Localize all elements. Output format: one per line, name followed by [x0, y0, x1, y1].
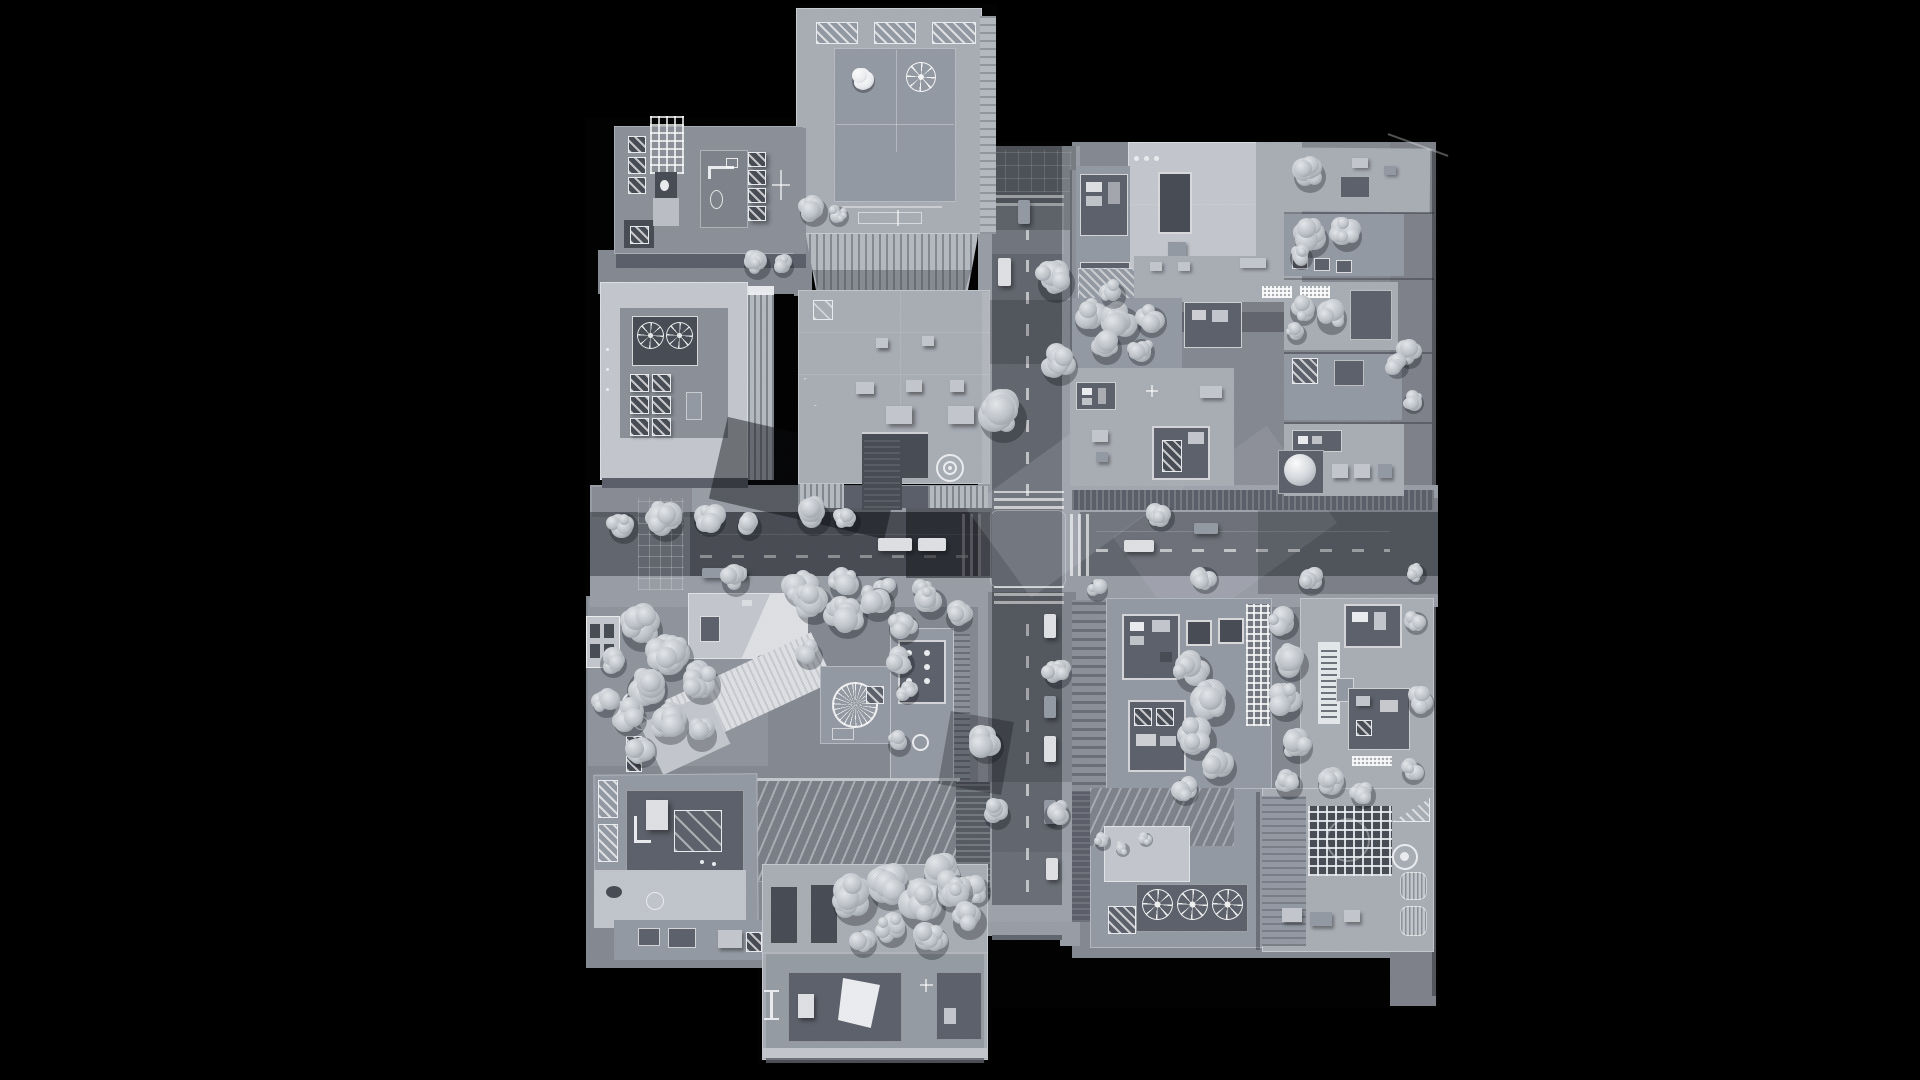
d-row1-unit2: [1384, 166, 1396, 175]
d-signage-dots-1: [1262, 286, 1292, 298]
f6-facade-south: [766, 1058, 984, 1063]
b3-unit-3: [630, 396, 649, 414]
c-lunit-1: [886, 406, 912, 424]
f-fanbox-1: [626, 736, 642, 752]
tower-skylight-3: [932, 22, 976, 44]
c-seam-1: [798, 332, 990, 333]
f6-item: [944, 1008, 956, 1024]
c-unit-a: [876, 338, 888, 348]
tower-ledge-line: [842, 206, 942, 208]
car: [998, 258, 1011, 286]
c-seam-3: [900, 290, 901, 412]
b1-roof-blob: [660, 180, 669, 191]
c-atrium-edge: [862, 432, 928, 434]
f5-oval: [606, 886, 622, 898]
d-mid-cross-v: [1151, 385, 1153, 397]
f-house-win-3: [590, 644, 600, 658]
b2-ac-1: [748, 152, 766, 167]
d-south-unit3: [1240, 258, 1266, 268]
page-body: { "palette": { "bg":"#000000", "road":"#…: [0, 0, 1920, 1080]
tower-antenna: [897, 210, 899, 226]
d-garden-unit1: [1192, 310, 1206, 320]
f5-hatch-left-1: [598, 780, 618, 818]
tower-skylight-2: [874, 22, 916, 44]
b3-rim-dot-3: [606, 388, 609, 391]
g3-tank-2: [1400, 906, 1427, 936]
f4-top-edge: [742, 778, 960, 781]
f-house-win-4: [604, 644, 614, 658]
road-shadow-vmid: [988, 300, 1076, 364]
road-light-vbottom: [984, 852, 1076, 922]
f3-dot-4: [924, 650, 930, 656]
g-sign-lines: [1321, 648, 1337, 718]
d-row4-court: [1334, 360, 1364, 386]
d-row1-unit1: [1352, 158, 1368, 168]
b1-facade-east: [794, 128, 806, 254]
d-low-unit2: [1092, 430, 1108, 442]
f6-ibeam-bottom: [764, 1018, 779, 1020]
f3-dot-6: [924, 678, 930, 684]
c-seam-2: [798, 374, 990, 375]
d-mid-bedcourt: [1076, 382, 1116, 410]
b2-ac-2: [748, 170, 766, 185]
c-facade-sw: [798, 484, 844, 508]
g-alley: [1256, 792, 1260, 950]
b3-unit-7: [686, 392, 702, 420]
c-emblem-dot: [948, 466, 952, 470]
d-bright-unit: [1168, 242, 1186, 257]
tower-skylight-1: [816, 22, 858, 44]
g-east-bed: [1352, 612, 1368, 622]
g-east-court1: [1344, 604, 1402, 648]
f5-hatch-left-2: [598, 824, 618, 862]
f6-court-2: [936, 972, 982, 1040]
g1-bed1: [1130, 622, 1144, 631]
g2-facade-west: [1072, 792, 1090, 922]
c-unit-b: [922, 336, 934, 346]
car: [1044, 800, 1056, 824]
d-garden-court: [1184, 302, 1242, 348]
tower-helipad-frame: [858, 212, 922, 224]
d-bright-tower-seam: [1128, 204, 1258, 205]
d-pergola-1: [1292, 256, 1308, 269]
f-house-win-2: [604, 624, 614, 638]
b3-fan-2: [666, 322, 693, 349]
car: [1124, 540, 1154, 552]
car: [1018, 200, 1030, 224]
g1-bed2: [1130, 636, 1144, 645]
d-pergola-2: [1314, 258, 1330, 271]
b3-facade-top-edge: [748, 286, 774, 295]
g2-fan-1: [1142, 889, 1173, 920]
g2-garden-court: [1104, 826, 1190, 882]
d-alley-2: [1284, 278, 1434, 280]
g3-tank-1: [1400, 872, 1427, 900]
c-diag-square: [813, 300, 833, 320]
b1-roof-court: [653, 198, 679, 226]
g-east-unit: [1374, 612, 1386, 630]
g1-dark-unit: [1160, 652, 1172, 662]
d-dot-1: [1134, 156, 1139, 161]
tower-court: [834, 48, 956, 202]
car: [1046, 858, 1058, 880]
b2-court: [700, 150, 748, 228]
d-low-unit3: [1096, 452, 1108, 462]
f-wheel-emblem: [622, 692, 644, 714]
f6-parapet: [762, 1048, 988, 1058]
b2-oval: [710, 190, 723, 209]
f2-mark-1: [742, 600, 752, 606]
f-sun-unit: [832, 728, 854, 740]
d-mid-units: [1200, 386, 1222, 398]
d-row4-hatch: [1292, 358, 1318, 384]
b1-antenna-h: [772, 184, 790, 186]
b3-rim-dot-1: [606, 348, 609, 351]
f5-unit-1: [638, 928, 660, 946]
c-facade-east-thin: [982, 292, 990, 484]
d-pergola-3: [1336, 260, 1352, 273]
road-shadow-west-end: [592, 487, 692, 517]
g3-gear-dot: [1400, 852, 1409, 861]
b3-unit-1: [630, 374, 649, 392]
g3-unit-2: [1310, 912, 1332, 926]
d-nw-bed2: [1086, 196, 1102, 206]
d-dome: [1284, 454, 1316, 486]
f-house-win-1: [590, 624, 600, 638]
g3-unit-3: [1344, 910, 1360, 922]
c-lunit-2: [948, 406, 974, 424]
g1-bed3: [1152, 620, 1170, 632]
f5-unit-4: [746, 932, 762, 952]
f5-dot-2: [712, 862, 716, 866]
b1-facade-south: [616, 254, 806, 268]
g-east-dots: [1352, 756, 1392, 766]
d-mid-bed3: [1098, 388, 1106, 404]
d-bright-tower: [1128, 142, 1258, 270]
g1-court2-hatch1: [1134, 708, 1152, 726]
d-row5-unit2: [1354, 464, 1370, 478]
f3-dot-1: [906, 650, 912, 656]
b1-vent-1: [628, 136, 646, 153]
b1-scaffold: [650, 116, 684, 174]
d-low-unit1: [1188, 432, 1204, 444]
car: [727, 568, 747, 578]
b2-box: [726, 158, 738, 168]
g2-fan-2: [1177, 889, 1208, 920]
g2-hatch: [1108, 906, 1136, 934]
f6-skylight-1: [770, 886, 798, 944]
g1-court2-hatch2: [1156, 708, 1174, 726]
g1-facade-west: [1072, 600, 1106, 812]
f5-unit-3: [718, 930, 742, 948]
b3-unit-6: [652, 418, 671, 436]
city-model-render: [0, 0, 1920, 1080]
d-south-unit1: [1150, 262, 1162, 271]
tower-facade-east: [980, 16, 996, 234]
d-nw-bed3: [1108, 182, 1120, 204]
d-garden-unit2: [1212, 310, 1228, 322]
f6-skylight-2: [810, 884, 838, 944]
g2-fan-3: [1212, 889, 1243, 920]
c-unit-3: [950, 380, 964, 392]
b1-vent-3: [628, 177, 646, 194]
g1-skylight-2: [1218, 618, 1244, 644]
f3-court: [898, 640, 946, 704]
b3-fan-1: [637, 322, 664, 349]
f6-ibeam-v: [770, 990, 773, 1020]
f3-dot-2: [906, 664, 912, 670]
d-row5-unit3: [1378, 464, 1392, 478]
f-sun-hatch: [866, 686, 884, 704]
c-unit-2: [906, 380, 922, 392]
car: [1044, 614, 1056, 638]
f5-hatch-panel: [674, 810, 722, 852]
d-signage-dots-2: [1300, 286, 1330, 298]
d-dot-3: [1154, 156, 1159, 161]
car: [1044, 696, 1056, 718]
b3-unit-5: [630, 418, 649, 436]
f5-unit-2: [668, 928, 696, 948]
f3-dot-5: [924, 664, 930, 670]
tower-court-line-h: [836, 124, 954, 125]
b3-rim-dot-2: [606, 368, 609, 371]
f5-pipe-h: [634, 840, 651, 843]
g1-skylight-1: [1186, 620, 1212, 646]
tower-court-orb: [906, 62, 936, 92]
g1-trellis: [1246, 604, 1270, 726]
b3-unit-2: [652, 374, 671, 392]
c-atrium-stripes: [864, 436, 900, 508]
c-facade-se: [928, 486, 988, 508]
d-mid-bed1: [1082, 388, 1092, 395]
f5-pinwheel: [646, 892, 664, 910]
d-row3-court: [1350, 290, 1392, 340]
b2-ac-3: [748, 188, 766, 203]
g3-lattice: [1308, 806, 1392, 876]
g3-ribbed-west: [1262, 796, 1306, 946]
car: [878, 538, 912, 551]
g3-unit-1: [1282, 908, 1302, 922]
car: [918, 538, 946, 551]
d-row5-unit1: [1332, 464, 1348, 478]
d-row5-bed2: [1312, 436, 1322, 444]
d-row5-bed1: [1298, 436, 1308, 444]
b3-unit-4: [652, 396, 671, 414]
f3-ring-icon: [912, 734, 929, 751]
f2-slab-a-skylight: [700, 616, 720, 642]
f5-pipe-v: [634, 816, 637, 843]
f-fanbox-2: [626, 756, 642, 772]
b2-duct-v: [708, 166, 711, 179]
f3-shadow: [938, 711, 1014, 795]
g1-court2-bed1: [1136, 734, 1156, 746]
g-east-c2-unit2: [1380, 700, 1398, 712]
c-unit-1: [856, 382, 874, 394]
b1-vent-2: [628, 157, 646, 174]
d-bright-skylight: [1158, 172, 1192, 234]
g1-court2-bed2: [1160, 736, 1176, 746]
car: [1194, 523, 1218, 534]
d-garden-roof: [1072, 298, 1182, 368]
tower-court-line-v: [896, 50, 897, 152]
d-nw-bed1: [1086, 182, 1102, 192]
f6-ibeam-top: [764, 990, 779, 992]
car: [702, 568, 724, 578]
d-dot-2: [1144, 156, 1149, 161]
d-row1-court: [1340, 176, 1370, 198]
car: [1044, 736, 1056, 762]
d-south-unit2: [1178, 262, 1190, 271]
f6-cross-v: [925, 979, 927, 992]
b1-vent-4: [630, 226, 649, 244]
g-east-c2-unit1: [1356, 696, 1370, 706]
f6-white-box: [798, 994, 814, 1018]
d-mid-bed2: [1082, 398, 1092, 405]
g-east-c2-hatch: [1356, 720, 1372, 736]
f3-dot-3: [906, 678, 912, 684]
d-low-hatchcrate: [1162, 440, 1182, 472]
b2-ac-4: [748, 206, 766, 221]
f5-dot-1: [700, 860, 704, 864]
f5-white-box: [646, 800, 668, 830]
